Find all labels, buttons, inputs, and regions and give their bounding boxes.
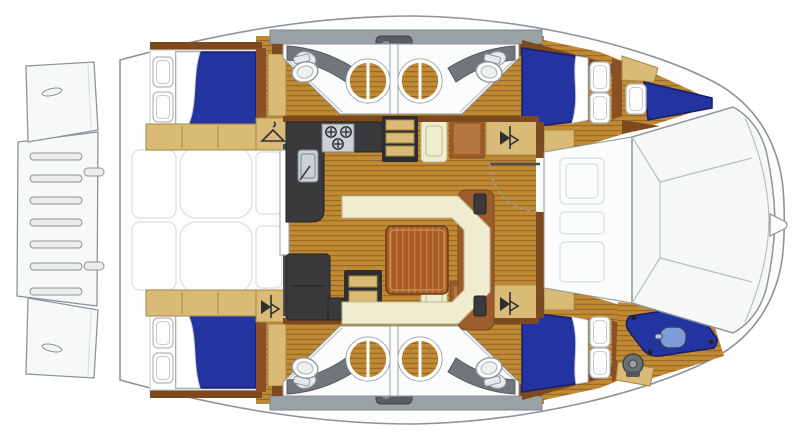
companionway-steps-top (382, 116, 418, 162)
cockpit-table (180, 222, 252, 292)
cockpit-table (180, 148, 252, 218)
speaker-block (474, 194, 486, 214)
step-tab (84, 262, 104, 270)
speaker-block (474, 296, 486, 316)
cockpit-bench-right (256, 226, 282, 288)
step-tab (84, 168, 104, 176)
cockpit-bench-left (132, 150, 176, 218)
forward-cockpit (544, 137, 632, 303)
swim-platform (17, 132, 104, 306)
catamaran-floorplan (0, 0, 800, 440)
floorplan-stage (0, 0, 800, 440)
windlass (623, 354, 643, 377)
salon-table (386, 226, 448, 294)
outboard-motor (660, 327, 686, 348)
galley-lower-cabinet (286, 254, 330, 320)
cockpit-bench-left (132, 222, 176, 290)
cockpit-bench-right (256, 152, 282, 214)
